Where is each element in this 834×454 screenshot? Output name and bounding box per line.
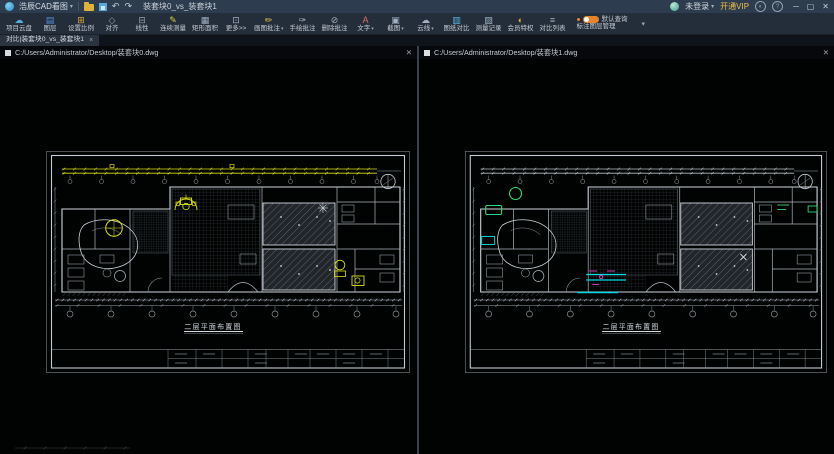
- chevron-down-icon: ▾: [431, 26, 434, 32]
- tab-bar: 对比|装套块0_vs_装套块1 ×: [0, 35, 834, 46]
- titlebar: 浩辰CAD看图 ▾ ↶ ↷ 装套块0_vs_装套块1 未登录 ▾ 开通VIP ◐…: [0, 0, 834, 13]
- pathbar-left: C:/Users/Administrator/Desktop/装套块0.dwg …: [0, 46, 417, 59]
- minimize-button[interactable]: ─: [793, 2, 799, 11]
- file-path-right: C:/Users/Administrator/Desktop/装套块1.dwg: [434, 48, 577, 58]
- toolbar-item-icon: ☁: [421, 15, 430, 25]
- toolbar-item-label: 画图批注▾: [254, 26, 284, 33]
- app-logo-icon: [5, 2, 14, 11]
- toolbar-item-label: 矩形面积: [192, 26, 218, 33]
- pane-left: C:/Users/Administrator/Desktop/装套块0.dwg …: [0, 46, 417, 454]
- avatar[interactable]: [670, 2, 679, 11]
- dwg-file-icon: [424, 50, 430, 56]
- toolbar-item-11[interactable]: ⊘删除批注: [319, 13, 351, 34]
- toolbar-item-icon: ▣: [391, 15, 400, 25]
- status-dot: [577, 18, 580, 21]
- layer-manager-dropdown[interactable]: 标注图层管理: [577, 24, 616, 31]
- toolbar-item-3[interactable]: ⊞设置比例: [65, 13, 97, 34]
- toolbar-item-18[interactable]: ≡对比列表: [537, 13, 569, 34]
- toolbar-item-label: 对比列表: [540, 26, 566, 33]
- toolbar-item-4[interactable]: ◇对齐: [97, 13, 127, 34]
- toolbar-item-icon: ≡: [550, 15, 555, 25]
- toolbar-item-8[interactable]: ⊡更多>>: [221, 13, 251, 34]
- login-label: 未登录: [685, 1, 709, 12]
- login-button[interactable]: 未登录 ▾: [685, 1, 714, 12]
- toolbar-item-icon: ✏: [265, 15, 273, 25]
- toolbar-item-icon: ▦: [201, 15, 210, 25]
- toolbar-item-icon: ⊞: [77, 15, 85, 25]
- toolbar-item-icon: ⊟: [138, 15, 146, 25]
- workspace: C:/Users/Administrator/Desktop/装套块0.dwg …: [0, 46, 834, 454]
- toolbar: ☁项目云盘▤图层⊞设置比例◇对齐⊟线性✎连续测量▦矩形面积⊡更多>>✏画图批注▾…: [0, 13, 834, 35]
- toolbar-item-icon: A: [363, 15, 369, 25]
- dwg-file-icon: [5, 50, 11, 56]
- toolbar-right-group: 默认查询 标注图层管理 ▾: [577, 13, 646, 34]
- save-icon[interactable]: [99, 3, 107, 11]
- drawing-canvas-old[interactable]: 二层平面布置图: [0, 59, 417, 454]
- toolbar-item-label: 图层: [44, 26, 57, 33]
- toolbar-item-icon: ▥: [452, 15, 461, 25]
- toolbar-item-label: 删除批注: [322, 26, 348, 33]
- pane-right: C:/Users/Administrator/Desktop/装套块1.dwg …: [417, 46, 834, 454]
- toolbar-item-icon: ✑: [299, 15, 307, 25]
- toolbar-item-5[interactable]: ⊟线性: [127, 13, 157, 34]
- chevron-down-icon: ▾: [70, 3, 73, 10]
- toolbar-item-label: 线性: [136, 26, 149, 33]
- drawing-title-label: 二层平面布置图: [184, 322, 241, 331]
- maximize-button[interactable]: ▢: [807, 2, 815, 11]
- chevron-down-icon: ▾: [281, 26, 284, 32]
- chevron-down-icon: ▾: [371, 26, 374, 32]
- chevron-down-icon[interactable]: ▾: [642, 20, 646, 28]
- toolbar-item-icon: ✎: [169, 15, 177, 25]
- file-path-left: C:/Users/Administrator/Desktop/装套块0.dwg: [15, 48, 158, 58]
- toolbar-item-icon: ▨: [484, 15, 493, 25]
- toolbar-item-label: 文字▾: [357, 26, 374, 33]
- toolbar-item-label: 连续测量: [160, 26, 186, 33]
- toolbar-item-label: 图纸对比: [444, 26, 470, 33]
- toolbar-item-6[interactable]: ✎连续测量: [157, 13, 189, 34]
- canvas-left[interactable]: 二层平面布置图: [0, 59, 417, 454]
- theme-icon[interactable]: ◐: [755, 1, 766, 12]
- undo-button[interactable]: ↶: [112, 2, 120, 11]
- vip-button[interactable]: 开通VIP: [720, 1, 749, 12]
- drawing-canvas-new[interactable]: 二层平面布置图: [419, 59, 834, 454]
- pane-close-button[interactable]: ✕: [406, 49, 412, 57]
- toolbar-item-17[interactable]: ◐会员特权: [505, 13, 537, 34]
- pane-close-button[interactable]: ✕: [823, 49, 829, 57]
- toolbar-item-label: 测量记录: [476, 26, 502, 33]
- redo-button[interactable]: ↷: [124, 2, 132, 11]
- toolbar-item-15[interactable]: ▥图纸对比: [441, 13, 473, 34]
- app-menu[interactable]: 浩辰CAD看图 ▾: [19, 1, 73, 12]
- toolbar-item-icon: ⊡: [232, 15, 240, 25]
- toolbar-item-icon: ☁: [15, 15, 24, 25]
- app-name: 浩辰CAD看图: [19, 1, 68, 12]
- toolbar-item-icon: ▤: [46, 15, 55, 25]
- help-icon[interactable]: ?: [772, 1, 783, 12]
- toolbar-item-label: 设置比例: [68, 26, 94, 33]
- toolbar-item-label: 手绘批注: [290, 26, 316, 33]
- toolbar-item-2[interactable]: ▤图层: [35, 13, 65, 34]
- toolbar-item-16[interactable]: ▨测量记录: [473, 13, 505, 34]
- toolbar-item-9[interactable]: ✏画图批注▾: [251, 13, 287, 34]
- open-file-icon[interactable]: [84, 4, 94, 11]
- toolbar-item-label: 会员特权: [508, 26, 534, 33]
- toolbar-item-1[interactable]: ☁项目云盘: [3, 13, 35, 34]
- chevron-down-icon: ▾: [711, 3, 714, 10]
- document-title: 装套块0_vs_装套块1: [143, 1, 217, 12]
- toolbar-item-label: 对齐: [106, 26, 119, 33]
- pathbar-right: C:/Users/Administrator/Desktop/装套块1.dwg …: [419, 46, 834, 59]
- tab-close-icon[interactable]: ×: [89, 37, 93, 44]
- chevron-down-icon: ▾: [401, 26, 404, 32]
- drawing-title-label: 二层平面布置图: [602, 322, 659, 331]
- toolbar-item-icon: ◐: [518, 15, 523, 25]
- toolbar-item-7[interactable]: ▦矩形面积: [189, 13, 221, 34]
- close-button[interactable]: ✕: [822, 2, 829, 11]
- toolbar-item-13[interactable]: ▣截图▾: [381, 13, 411, 34]
- toolbar-item-10[interactable]: ✑手绘批注: [287, 13, 319, 34]
- toolbar-item-14[interactable]: ☁云线▾: [411, 13, 441, 34]
- tab-label: 对比|装套块0_vs_装套块1: [6, 37, 84, 44]
- toolbar-item-label: 项目云盘: [6, 26, 32, 33]
- toolbar-item-icon: ◇: [109, 15, 116, 25]
- default-query-toggle[interactable]: [583, 16, 599, 23]
- toolbar-item-icon: ⊘: [331, 15, 339, 25]
- canvas-right[interactable]: 二层平面布置图: [419, 59, 834, 454]
- divider: [78, 2, 79, 11]
- toolbar-item-label: 更多>>: [226, 26, 247, 33]
- tab-compare[interactable]: 对比|装套块0_vs_装套块1 ×: [0, 35, 99, 46]
- toolbar-item-label: 截图▾: [387, 26, 404, 33]
- toolbar-item-label: 云线▾: [417, 26, 434, 33]
- toolbar-item-12[interactable]: A文字▾: [351, 13, 381, 34]
